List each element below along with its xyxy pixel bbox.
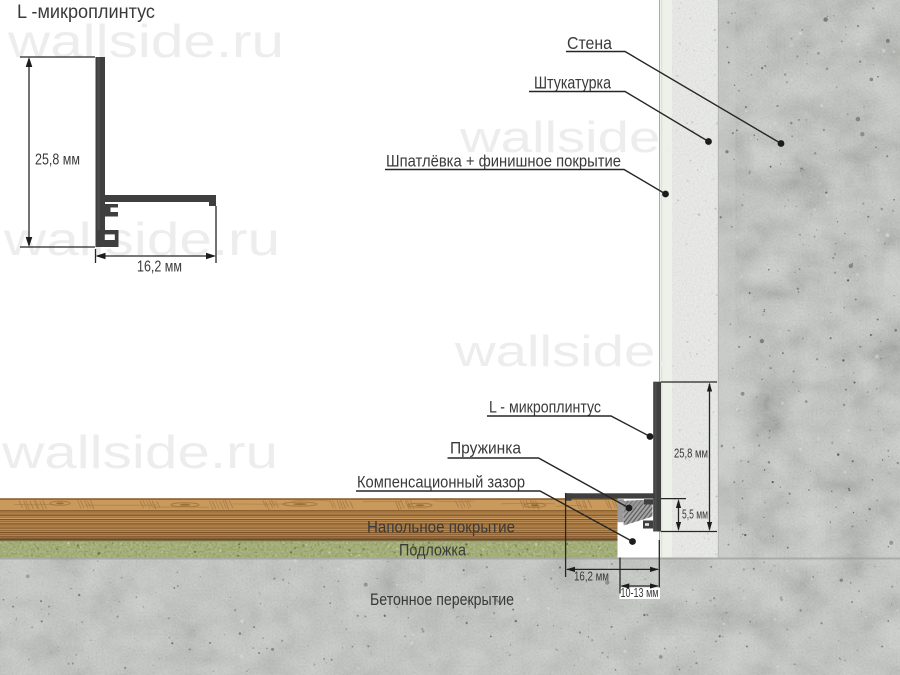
svg-text:L - микроплинтус: L - микроплинтус <box>489 399 601 417</box>
svg-text:wallside.ru: wallside.ru <box>3 213 280 265</box>
svg-text:Напольное покрытие: Напольное покрытие <box>367 518 515 537</box>
svg-text:Шпатлёвка + финишное покрытие: Шпатлёвка + финишное покрытие <box>386 152 621 171</box>
svg-text:L -микроплинтус: L -микроплинтус <box>17 1 155 23</box>
svg-text:16,2 мм: 16,2 мм <box>137 259 182 276</box>
svg-text:Пружинка: Пружинка <box>450 439 521 458</box>
svg-text:Стена: Стена <box>567 33 612 53</box>
svg-text:25,8 мм: 25,8 мм <box>35 152 80 169</box>
svg-text:5,5 мм: 5,5 мм <box>682 507 708 522</box>
svg-text:Бетонное перекрытие: Бетонное перекрытие <box>370 591 514 609</box>
svg-text:Компенсационный зазор: Компенсационный зазор <box>357 474 525 492</box>
svg-text:Подложка: Подложка <box>399 542 467 560</box>
svg-text:10-13 мм: 10-13 мм <box>621 586 659 600</box>
svg-text:16,2 мм: 16,2 мм <box>574 569 609 584</box>
svg-text:Штукатурка: Штукатурка <box>534 73 611 93</box>
svg-text:25,8 мм: 25,8 мм <box>674 446 708 461</box>
svg-text:wallside.ru: wallside.ru <box>1 426 278 478</box>
